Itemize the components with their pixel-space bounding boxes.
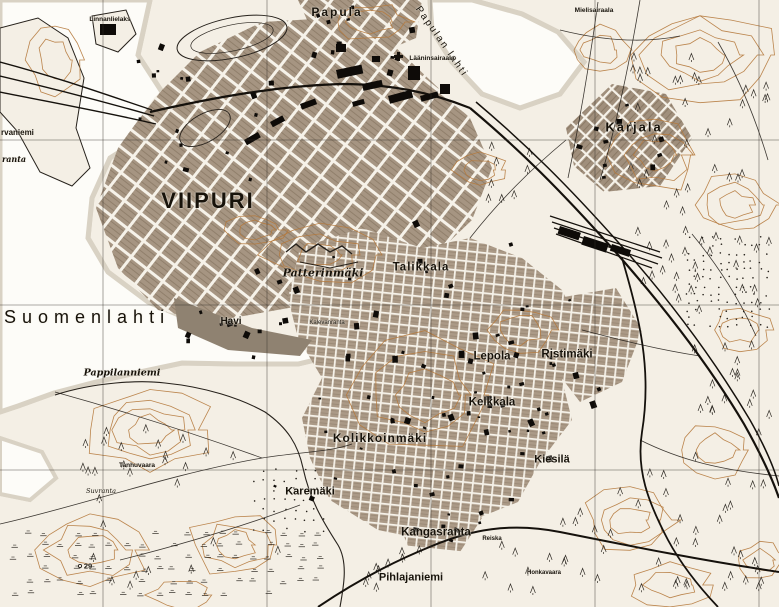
map-viewport[interactable]: VIIPURISuomenlahtiPapulaPapulan lahtiKar…: [0, 0, 779, 607]
map-image: [0, 0, 779, 607]
